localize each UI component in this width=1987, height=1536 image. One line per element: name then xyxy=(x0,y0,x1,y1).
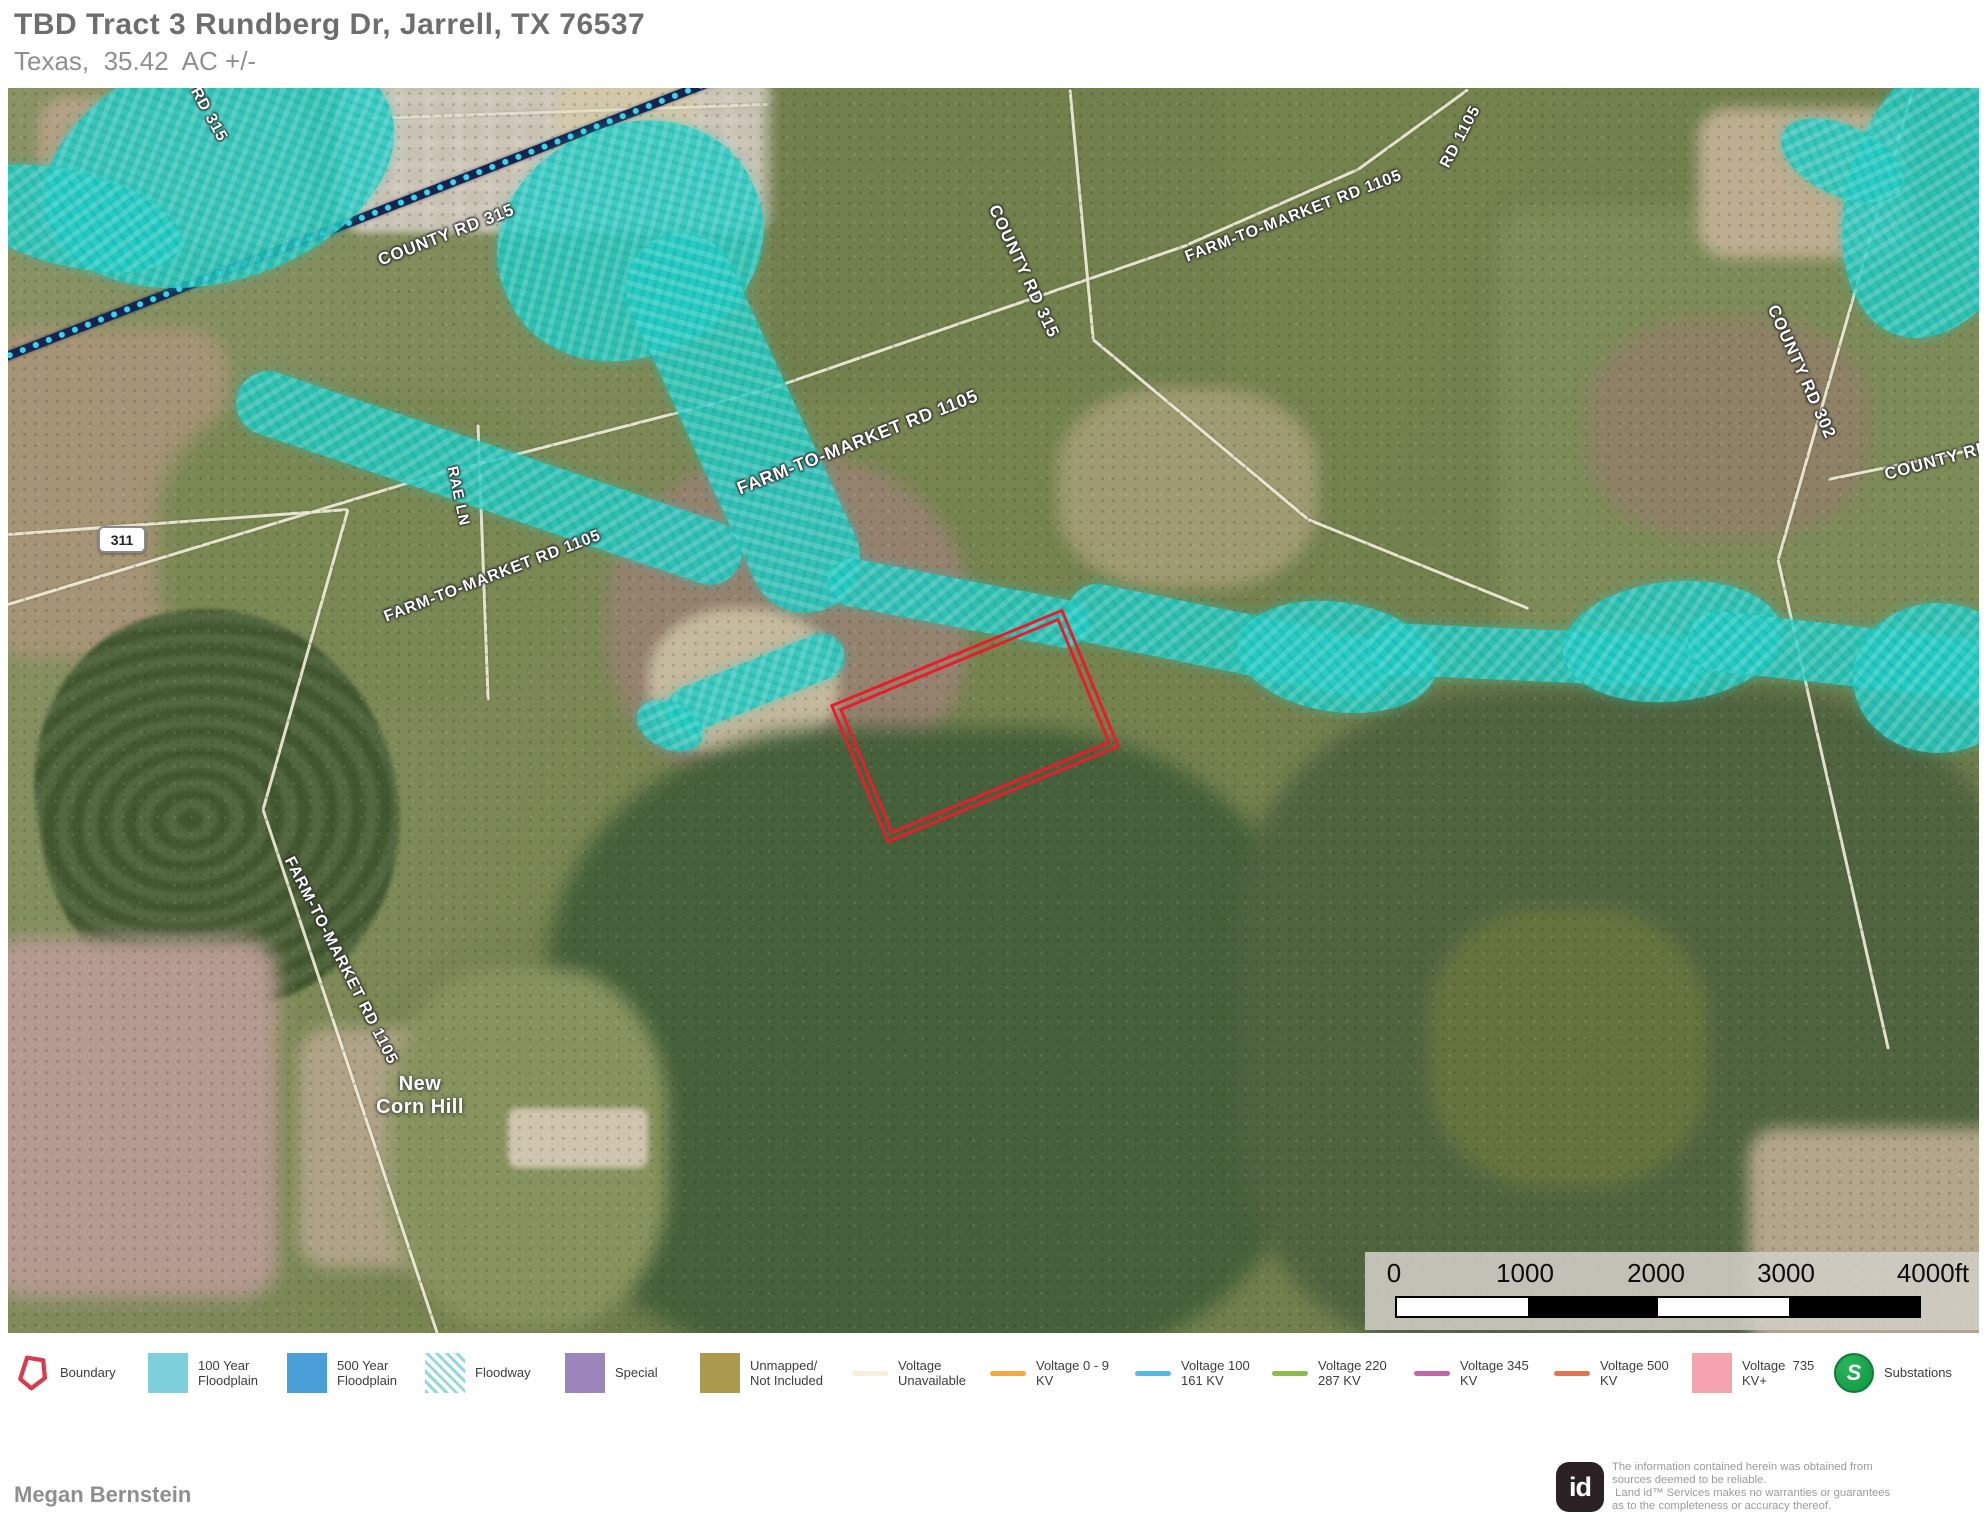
scale-tick-label: 4000ft xyxy=(1897,1258,1969,1289)
floodplain-100-swatch xyxy=(148,1353,188,1393)
agent-name: Megan Bernstein xyxy=(14,1482,191,1508)
floodplain-500-swatch xyxy=(287,1353,327,1393)
scale-tick-label: 2000 xyxy=(1627,1258,1685,1289)
disclaimer-line: The information contained herein was obt… xyxy=(1612,1461,1932,1474)
voltage-220-287-line-swatch xyxy=(1272,1371,1308,1376)
legend-item-voltage-220-287: Voltage 220 287 KV xyxy=(1272,1333,1387,1413)
legend-label: Special xyxy=(615,1365,658,1381)
scale-segment xyxy=(1397,1298,1528,1316)
legend-label: 500 Year Floodplain xyxy=(337,1358,397,1389)
legend-item-voltage-735: Voltage 735 KV+ xyxy=(1692,1333,1814,1413)
disclaimer-line: as to the completeness or accuracy there… xyxy=(1612,1500,1932,1513)
legend-label: Voltage 0 - 9 KV xyxy=(1036,1358,1109,1389)
voltage-735-swatch xyxy=(1692,1353,1732,1393)
page: { "header": { "title": "TBD Tract 3 Rund… xyxy=(0,0,1987,1536)
legend-item-special: Special xyxy=(565,1333,658,1413)
legend-item-voltage-500: Voltage 500 KV xyxy=(1554,1333,1669,1413)
special-swatch xyxy=(565,1353,605,1393)
land-id-logo: id xyxy=(1556,1462,1604,1512)
legend-item-floodway: Floodway xyxy=(425,1333,531,1413)
voltage-100-161-line-swatch xyxy=(1135,1371,1171,1376)
voltage-0-9-line-swatch xyxy=(990,1371,1026,1376)
legend-label: Voltage Unavailable xyxy=(898,1358,966,1389)
floodway-hatch-swatch xyxy=(425,1353,465,1393)
legend-item-substations: SSubstations xyxy=(1834,1333,1952,1413)
map-legend: Boundary100 Year Floodplain500 Year Floo… xyxy=(0,1333,1987,1413)
legend-label: Voltage 100 161 KV xyxy=(1181,1358,1250,1389)
legend-label: 100 Year Floodplain xyxy=(198,1358,258,1389)
boundary-icon xyxy=(16,1352,50,1394)
map-terrain-patch xyxy=(1428,908,1708,1188)
page-title: TBD Tract 3 Rundberg Dr, Jarrell, TX 765… xyxy=(14,8,645,42)
legend-label: Floodway xyxy=(475,1365,531,1381)
route-badge: 311 xyxy=(98,526,146,553)
scale-segment xyxy=(1789,1298,1920,1316)
map-terrain-patch xyxy=(8,938,278,1298)
disclaimer-text: The information contained herein was obt… xyxy=(1612,1461,1932,1513)
scale-bar-segments xyxy=(1395,1296,1921,1318)
legend-item-unmapped: Unmapped/ Not Included xyxy=(700,1333,823,1413)
legend-label: Voltage 500 KV xyxy=(1600,1358,1669,1389)
legend-label: Voltage 220 287 KV xyxy=(1318,1358,1387,1389)
road-label: RD 1105 xyxy=(1437,103,1485,171)
legend-label: Unmapped/ Not Included xyxy=(750,1358,823,1389)
voltage-unavailable-line-swatch xyxy=(852,1371,888,1376)
path xyxy=(20,1358,45,1389)
scale-segment xyxy=(1658,1298,1789,1316)
legend-label: Voltage 345 KV xyxy=(1460,1358,1529,1389)
scale-bar: 01000200030004000ft xyxy=(1365,1252,1979,1330)
road-line xyxy=(1307,518,1529,610)
legend-label: Substations xyxy=(1884,1365,1952,1381)
map-terrain-patch xyxy=(508,1108,648,1168)
voltage-345-line-swatch xyxy=(1414,1371,1450,1376)
scale-tick-label: 1000 xyxy=(1496,1258,1554,1289)
scale-segment xyxy=(1528,1298,1659,1316)
legend-item-voltage-0-9: Voltage 0 - 9 KV xyxy=(990,1333,1109,1413)
map-canvas: RD 315COUNTY RD 315COUNTY RD 315FARM-TO-… xyxy=(8,88,1979,1333)
legend-item-voltage-100-161: Voltage 100 161 KV xyxy=(1135,1333,1250,1413)
unmapped-swatch xyxy=(700,1353,740,1393)
legend-item-voltage-unavailable: Voltage Unavailable xyxy=(852,1333,966,1413)
substation-icon: S xyxy=(1834,1353,1874,1393)
legend-label: Voltage 735 KV+ xyxy=(1742,1358,1814,1389)
scale-tick-label: 0 xyxy=(1387,1258,1401,1289)
legend-label: Boundary xyxy=(60,1365,116,1381)
page-subtitle: Texas, 35.42 AC +/- xyxy=(14,46,256,77)
disclaimer-line: Land id™ Services makes no warranties or… xyxy=(1612,1487,1932,1500)
legend-item-boundary: Boundary xyxy=(16,1333,116,1413)
map-terrain-patch xyxy=(768,88,1228,398)
place-label: New Corn Hill xyxy=(360,1073,480,1119)
legend-item-floodplain-100: 100 Year Floodplain xyxy=(148,1333,258,1413)
legend-item-floodplain-500: 500 Year Floodplain xyxy=(287,1333,397,1413)
disclaimer-line: sources deemed to be reliable. xyxy=(1612,1474,1932,1487)
legend-item-voltage-345: Voltage 345 KV xyxy=(1414,1333,1529,1413)
voltage-500-line-swatch xyxy=(1554,1371,1590,1376)
scale-tick-label: 3000 xyxy=(1757,1258,1815,1289)
